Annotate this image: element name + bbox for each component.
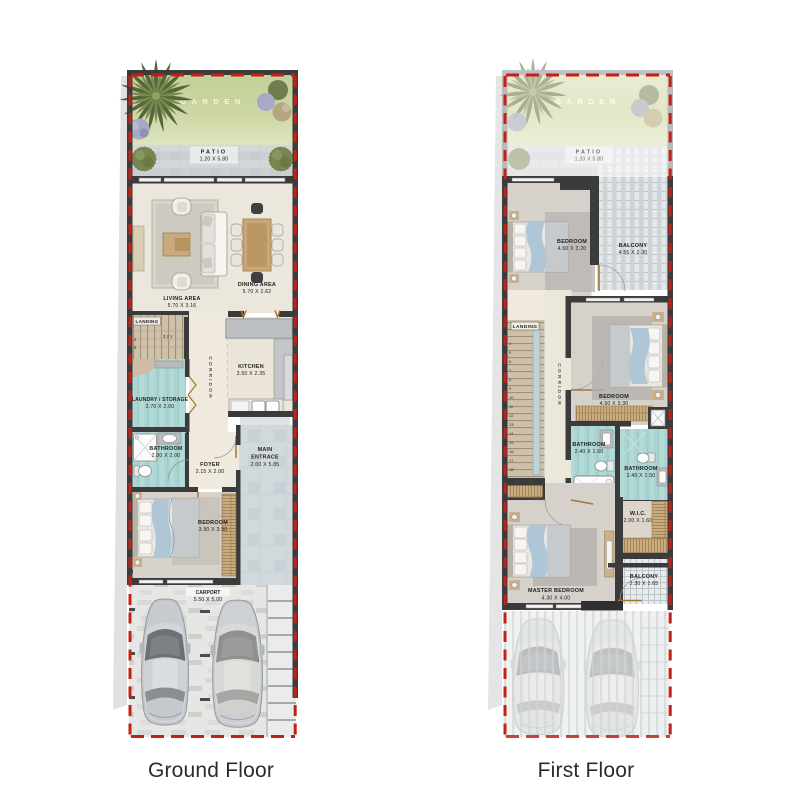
svg-text:5.70 X 3.16: 5.70 X 3.16: [168, 303, 197, 309]
svg-text:1.20 X 5.80: 1.20 X 5.80: [200, 157, 229, 163]
svg-text:3.90 X 3.90: 3.90 X 3.90: [199, 527, 228, 533]
svg-text:BATHROOM: BATHROOM: [149, 446, 183, 452]
svg-text:CARPORT: CARPORT: [196, 590, 221, 596]
svg-text:13: 13: [509, 422, 514, 427]
svg-text:12: 12: [509, 413, 514, 418]
svg-text:5.70 X 2.62: 5.70 X 2.62: [243, 289, 272, 295]
svg-text:15: 15: [509, 440, 514, 445]
svg-text:CORRIDOR: CORRIDOR: [207, 356, 213, 399]
svg-text:17: 17: [509, 458, 514, 463]
svg-text:2.40 X 1.50: 2.40 X 1.50: [627, 473, 656, 479]
svg-text:BATHROOM: BATHROOM: [624, 466, 658, 472]
svg-text:LANDING: LANDING: [135, 319, 158, 324]
svg-text:MASTER BEDROOM: MASTER BEDROOM: [528, 588, 584, 594]
svg-text:2.70 X 2.00: 2.70 X 2.00: [146, 404, 175, 410]
svg-text:10: 10: [509, 395, 514, 400]
svg-text:14: 14: [509, 431, 514, 436]
svg-text:PATIO: PATIO: [201, 150, 228, 156]
svg-text:3 2 1: 3 2 1: [163, 334, 173, 339]
svg-text:GARDEN: GARDEN: [555, 97, 621, 106]
svg-text:KITCHEN: KITCHEN: [238, 364, 264, 370]
svg-text:DINING AREA: DINING AREA: [238, 282, 276, 288]
svg-text:MAIN: MAIN: [258, 447, 273, 453]
svg-text:BATHROOM: BATHROOM: [572, 442, 606, 448]
svg-text:2.00 X 5.85: 2.00 X 5.85: [251, 462, 280, 468]
svg-text:GARDEN: GARDEN: [180, 97, 246, 106]
svg-text:4.30 X 4.00: 4.30 X 4.00: [542, 596, 571, 602]
svg-text:ENTRACE: ENTRACE: [251, 455, 279, 461]
svg-text:2.00 X 2.00: 2.00 X 2.00: [152, 453, 181, 459]
svg-text:18: 18: [509, 467, 514, 472]
svg-text:BEDROOM: BEDROOM: [557, 239, 587, 245]
svg-text:W.I.C.: W.I.C.: [630, 511, 646, 517]
svg-text:LAUNDRY / STORAGE: LAUNDRY / STORAGE: [132, 397, 189, 403]
svg-text:BEDROOM: BEDROOM: [599, 394, 629, 400]
svg-text:FOYER: FOYER: [200, 462, 220, 468]
svg-text:2.15 X 2.00: 2.15 X 2.00: [196, 469, 225, 475]
svg-text:LIVING AREA: LIVING AREA: [163, 296, 200, 302]
svg-text:BALCONY: BALCONY: [619, 243, 648, 249]
svg-text:2.40 X 1.60: 2.40 X 1.60: [575, 449, 604, 455]
svg-text:2.00 X 1.60: 2.00 X 1.60: [624, 518, 653, 524]
svg-text:5.50 X 5.00: 5.50 X 5.00: [194, 597, 223, 603]
svg-text:3.50 X 2.35: 3.50 X 2.35: [237, 371, 266, 377]
svg-text:4.50 X 3.20: 4.50 X 3.20: [558, 246, 587, 252]
svg-text:2.30 X 1.65: 2.30 X 1.65: [630, 581, 659, 587]
svg-text:CORRIDOR: CORRIDOR: [556, 363, 562, 406]
svg-text:BEDROOM: BEDROOM: [198, 520, 228, 526]
svg-text:16: 16: [509, 449, 514, 454]
svg-text:PATIO: PATIO: [576, 150, 603, 156]
svg-text:First Floor: First Floor: [538, 759, 635, 782]
svg-text:Ground Floor: Ground Floor: [148, 759, 274, 782]
svg-text:1.20 X 5.80: 1.20 X 5.80: [575, 157, 604, 163]
svg-text:LANDING: LANDING: [513, 324, 538, 330]
svg-text:4.55 X 2.30: 4.55 X 2.30: [619, 250, 648, 256]
